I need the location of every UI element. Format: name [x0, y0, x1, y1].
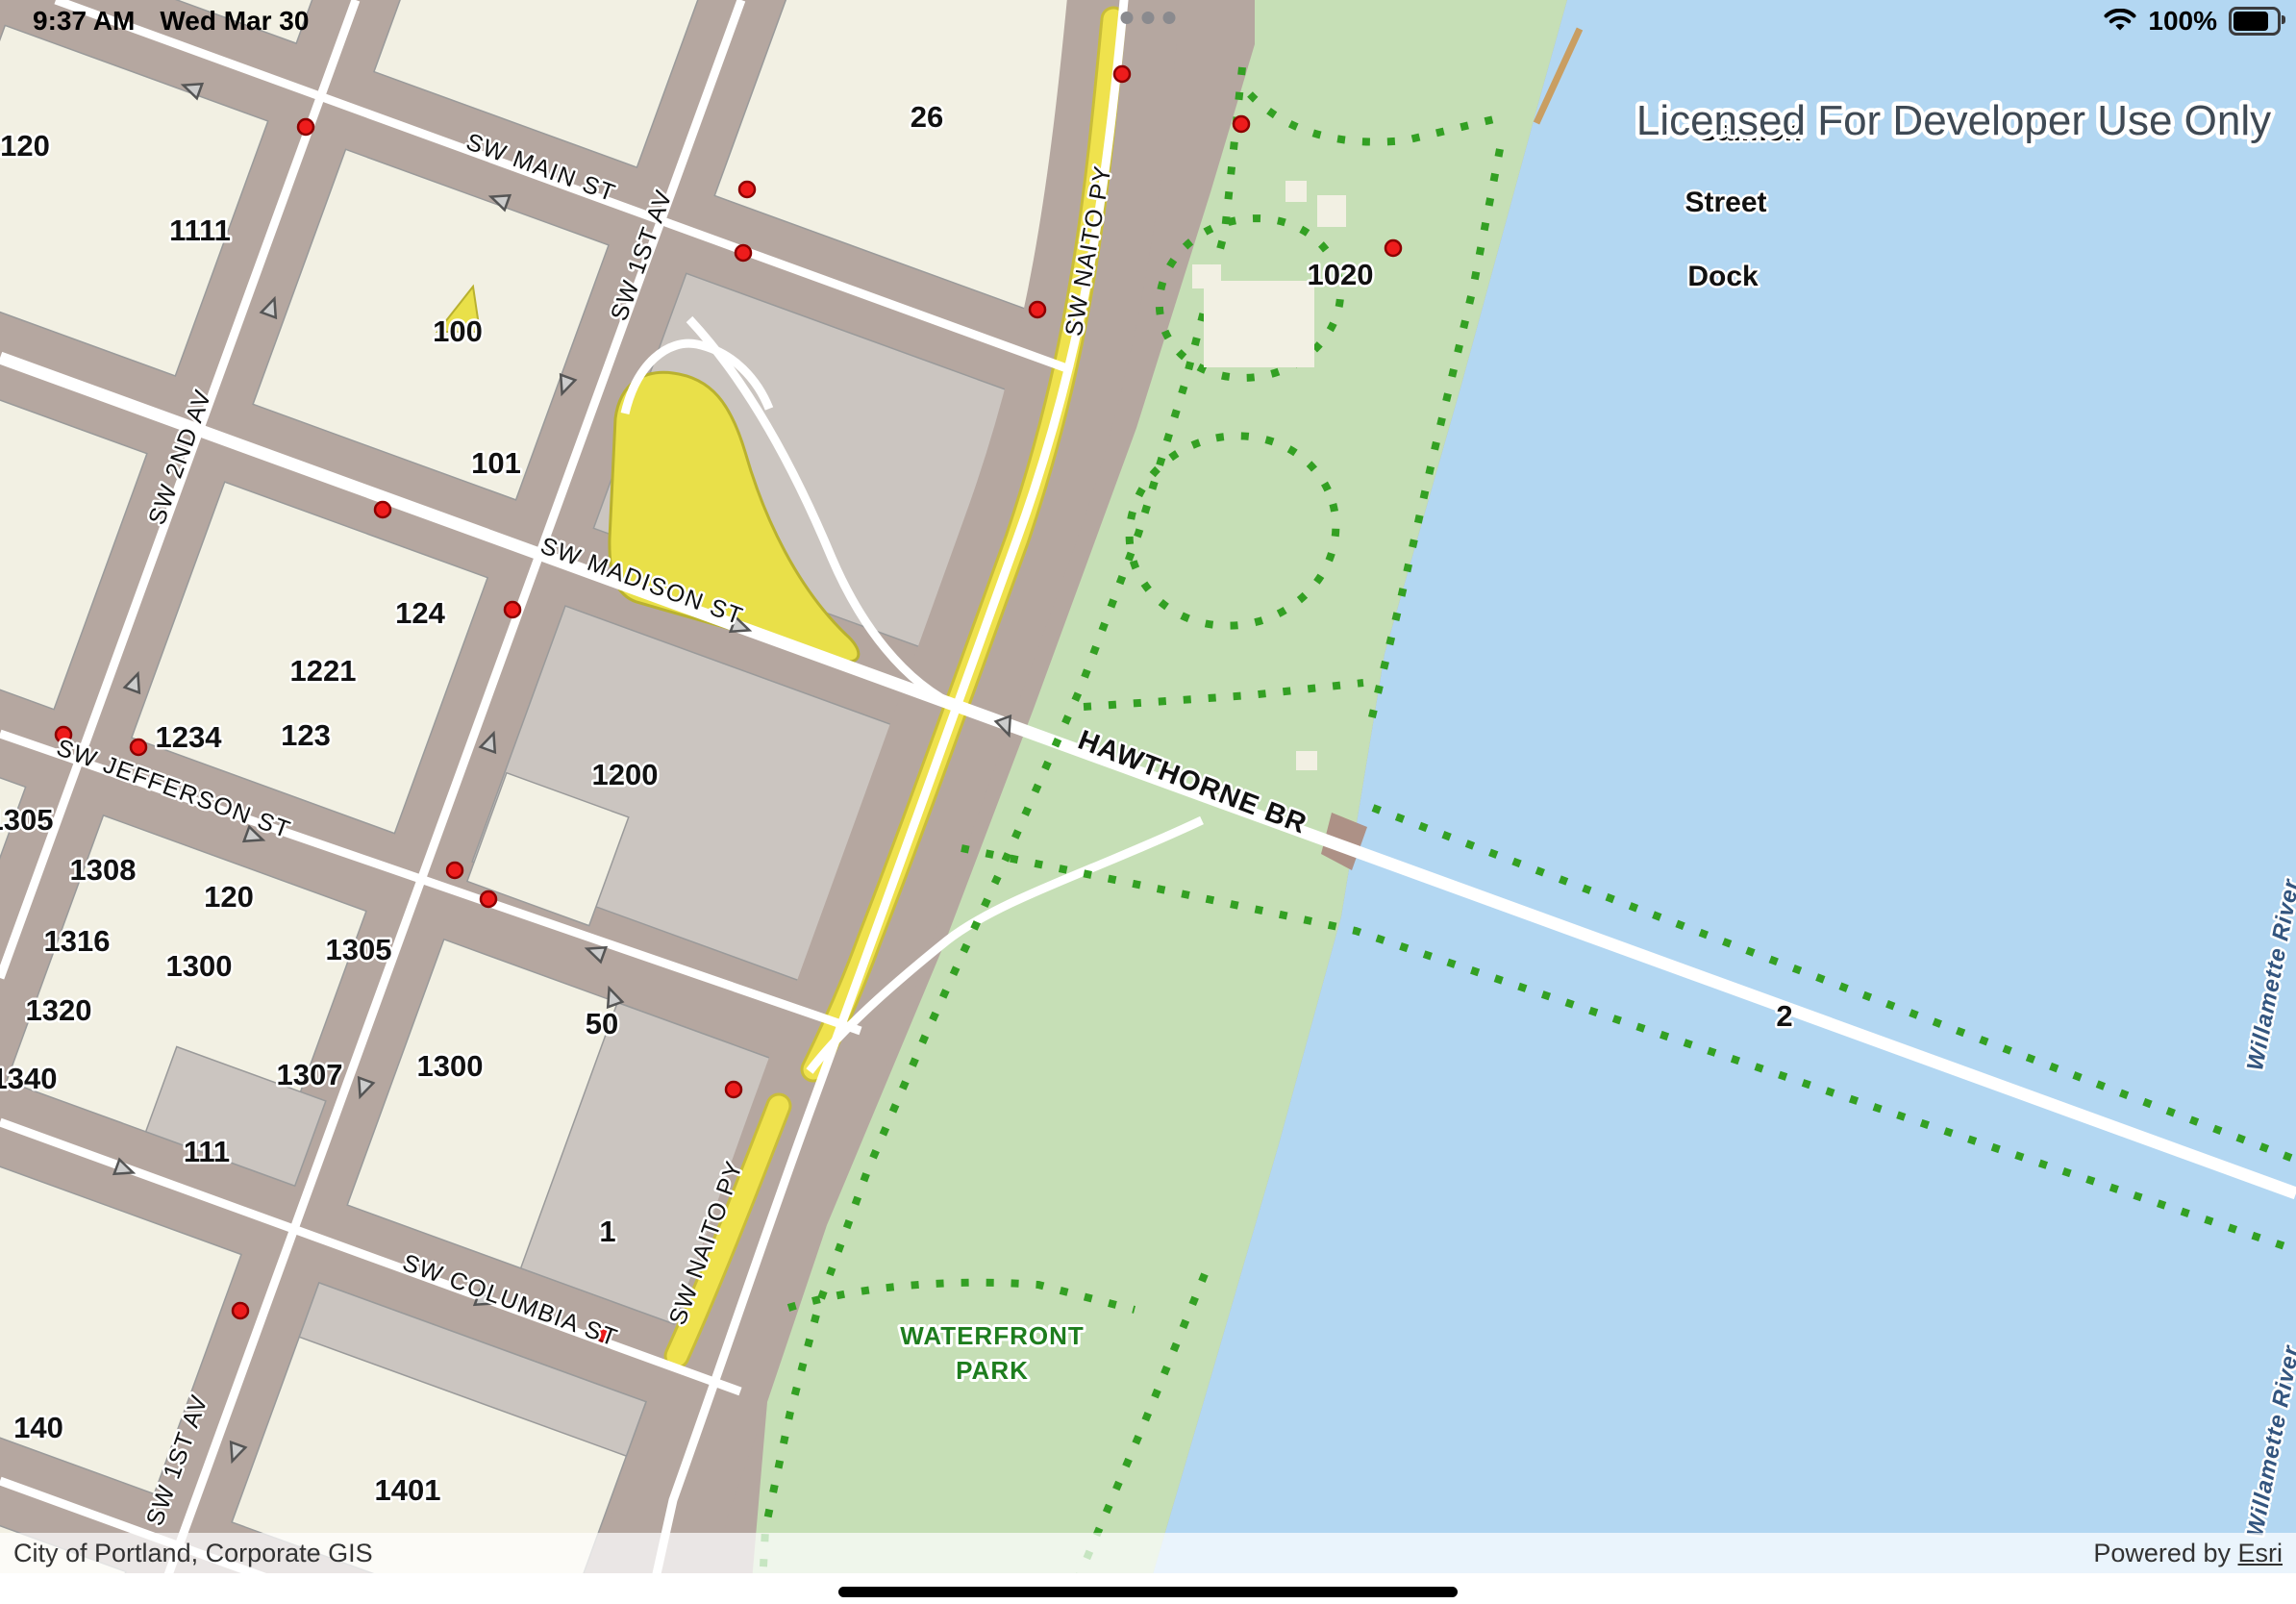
red-point-marker — [233, 1303, 248, 1318]
parcel-number-label: 1307 — [277, 1058, 343, 1091]
esri-link[interactable]: Esri — [2238, 1539, 2284, 1567]
park-building — [1317, 195, 1346, 227]
parcel-number-label: 1320 — [26, 993, 92, 1027]
red-point-marker — [1114, 66, 1130, 82]
attribution-bar: City of Portland, Corporate GIS Powered … — [0, 1533, 2296, 1573]
red-point-marker — [447, 863, 462, 878]
parcel-number-label: 50 — [586, 1007, 618, 1040]
parcel-number-label: 123 — [281, 718, 331, 752]
ipad-screen: SW MAIN STSW 1ST AVSW 2ND AVSW MADISON S… — [0, 0, 2296, 1604]
parcel-number-label: 101 — [471, 446, 521, 480]
attribution-source: City of Portland, Corporate GIS — [0, 1539, 373, 1568]
parcel-number-label: 1 — [599, 1215, 615, 1248]
parcel-number-label: 1300 — [166, 949, 233, 983]
park-building — [1192, 264, 1221, 288]
red-point-marker — [505, 602, 520, 617]
map-canvas[interactable]: SW MAIN STSW 1ST AVSW 2ND AVSW MADISON S… — [0, 0, 2296, 1604]
park-label: PARK — [956, 1356, 1029, 1385]
parcel-number-label: 140 — [13, 1411, 63, 1444]
parcel-number-label: 1111 — [169, 213, 231, 247]
parcel-number-label: 120 — [0, 129, 50, 163]
parcel-number-label: 1221 — [290, 654, 357, 688]
parcel-number-label: 1305 — [326, 933, 392, 966]
parcel-number-label: 2 — [1776, 999, 1792, 1033]
parcel-number-label: 1234 — [156, 720, 223, 754]
park-building — [1285, 181, 1307, 202]
parcel-number-label: 100 — [433, 314, 483, 348]
parcel-number-label: 1308 — [70, 853, 137, 887]
note-label: Dock — [1687, 261, 1759, 292]
red-point-marker — [1030, 302, 1045, 317]
park-building — [1204, 281, 1314, 367]
parcel-number-label: 111 — [184, 1135, 230, 1168]
park-building — [1296, 751, 1317, 770]
red-point-marker — [739, 182, 755, 197]
red-point-marker — [1385, 240, 1401, 256]
parcel-number-label: 124 — [395, 596, 445, 630]
note-label: Street — [1685, 187, 1766, 218]
parcel-number-label: 120 — [204, 880, 254, 914]
red-point-marker — [375, 502, 390, 517]
red-point-marker — [1234, 116, 1249, 132]
red-point-marker — [726, 1082, 741, 1097]
parcel-number-label: 1300 — [417, 1049, 484, 1083]
parcel-number-label: 1340 — [0, 1062, 57, 1095]
parcel-number-label: 1316 — [44, 924, 111, 958]
home-indicator[interactable] — [838, 1587, 1458, 1597]
park-label: WATERFRONT — [900, 1321, 1085, 1350]
red-point-marker — [736, 245, 751, 261]
red-point-marker — [481, 891, 496, 907]
parcel-number-label: 26 — [911, 100, 943, 134]
red-point-marker — [298, 119, 313, 135]
parcel-number-label: 1401 — [375, 1473, 441, 1507]
parcel-number-label: 1020 — [1308, 258, 1374, 291]
license-watermark: Licensed For Developer Use Only — [1636, 97, 2271, 144]
powered-by: Powered by Esri — [2093, 1539, 2296, 1568]
red-point-marker — [131, 739, 146, 755]
parcel-number-label: 1200 — [592, 758, 659, 791]
parcel-number-label: 1305 — [0, 803, 53, 837]
